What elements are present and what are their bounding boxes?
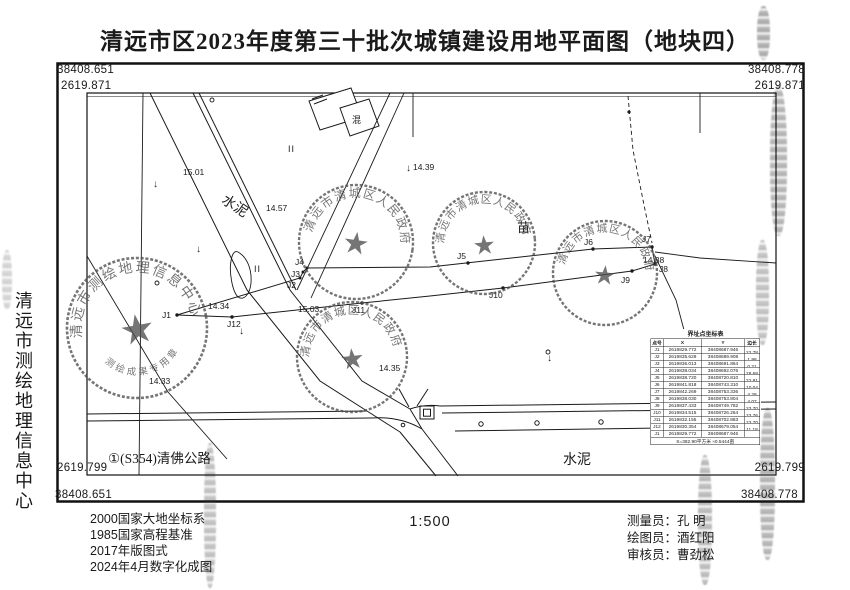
elevation-label: 14.57 [266, 203, 288, 213]
len: 10.04 [744, 381, 760, 388]
len: 0.21 [744, 360, 760, 367]
point-label: J8 [659, 264, 668, 274]
header-length: 边长 [744, 339, 760, 347]
elevation-label: 14.33 [149, 376, 171, 386]
len: 22.78 [744, 346, 760, 353]
boundary-point [466, 261, 469, 264]
road-edge [193, 93, 410, 409]
y: 38408749.782 [702, 402, 745, 409]
pt: J5 [651, 374, 664, 381]
x: 2619829.772 [663, 346, 702, 353]
table-summary-row: S=382.90平方米 ≈0.5444亩 [651, 437, 760, 445]
x: 2619830.354 [663, 423, 702, 430]
note-datum: 2000国家大地坐标系 [90, 511, 212, 527]
boundary-point-markers [175, 245, 656, 318]
boundary-point [591, 247, 594, 250]
x: 2619841.818 [663, 381, 702, 388]
scan-stain [757, 6, 770, 60]
elevation-label: 14.34 [208, 301, 230, 311]
len: 4.07 [744, 395, 760, 402]
paddy-mark: II [288, 144, 295, 154]
pt: J7 [651, 388, 664, 395]
road-edge [199, 93, 296, 290]
y: 38408753.336 [702, 388, 745, 395]
road-edge [87, 411, 367, 414]
corner-coord-top-right-x: 2619.871 [735, 80, 805, 92]
pt: J1 [651, 430, 664, 437]
junction-stub [399, 389, 428, 407]
boundary-point [175, 313, 178, 316]
note-digitized: 2024年4月数字化成图 [90, 559, 212, 575]
reviewer-role: 审核员： [627, 548, 677, 562]
x: 2619838.720 [663, 374, 702, 381]
pt: J9 [651, 402, 664, 409]
len: 1.98 [744, 353, 760, 360]
y: 38408692.076 [702, 367, 745, 374]
point-label: J1 [162, 310, 171, 320]
point-label: J3 [291, 269, 300, 279]
table-row: J102619834.51538408726.26423.76 [651, 409, 760, 416]
note-height: 1985国家高程基准 [90, 527, 212, 543]
scan-stain [2, 250, 12, 310]
table-row: J82619838.03038408753.8044.07 [651, 395, 760, 402]
spot-point [155, 281, 159, 285]
corner-coord-top-left-y: 38408.651 [57, 64, 114, 76]
y: 38408726.264 [702, 409, 745, 416]
header-y: Y [702, 339, 745, 347]
pt: J12 [651, 423, 664, 430]
star-icon: ★ [592, 259, 618, 291]
scan-stain [698, 455, 712, 585]
scan-stain [204, 443, 216, 588]
boundary-coordinate-table: 界址点坐标表 点号 X Y 边长 J12619829.77238408687.9… [650, 329, 760, 449]
len: 23.76 [744, 409, 760, 416]
elevation-label: 15.01 [183, 167, 205, 177]
corner-coord-bottom-left-x: 2619.799 [57, 462, 107, 474]
y: 38408679.054 [702, 423, 745, 430]
coordinate-table-title: 界址点坐标表 [651, 330, 761, 339]
road-edge [422, 429, 458, 476]
point-label: J5 [457, 251, 466, 261]
surveyor-role: 测量员： [627, 514, 677, 528]
x: 2619836.013 [663, 360, 702, 367]
corner-coord-bottom-left-y: 38408.651 [55, 489, 112, 501]
drafter-role: 绘图员： [627, 531, 677, 545]
x: 2619832.155 [663, 416, 702, 423]
seal-government-b: 清远市清城区人民政府 ★ [429, 188, 540, 299]
coordinate-table: 点号 X Y 边长 J12619829.77238408687.94622.78… [651, 339, 761, 446]
point-label: J9 [621, 275, 630, 285]
pt: J2 [651, 353, 664, 360]
star-icon: ★ [338, 342, 366, 375]
road-edge [150, 93, 367, 411]
cement-road-label: 水泥 [219, 192, 251, 221]
y: 38408687.946 [702, 346, 745, 353]
x: 2619834.515 [663, 409, 702, 416]
y: 38408689.908 [702, 353, 745, 360]
parcel-lower-edge [177, 247, 655, 317]
table-row: J72619842.26938408753.3364.28 [651, 388, 760, 395]
star-icon: ★ [340, 226, 371, 262]
down-arrow-icon: ↓ [196, 244, 201, 255]
road-point [401, 423, 405, 427]
seal-government-a: 清远市清城区人民政府 ★ [292, 178, 421, 307]
building-material-label: 混 [352, 115, 361, 125]
table-row: J112619832.15538408702.88323.70 [651, 416, 760, 423]
table-row: J92619837.43338408749.78223.70 [651, 402, 760, 409]
elevation-label: 14.39 [413, 162, 435, 172]
len: 22.91 [744, 374, 760, 381]
spot-point [210, 98, 214, 102]
down-arrow-icon: ↓ [547, 353, 552, 364]
pt: J6 [651, 381, 664, 388]
grid-line-vertical [139, 93, 143, 475]
scale-label: 1:500 [385, 514, 475, 530]
len: 23.70 [744, 402, 760, 409]
cement-road-label: 水泥 [563, 452, 591, 468]
y: 38408753.804 [702, 395, 745, 402]
table-row: J22619835.62938408689.9081.98 [651, 353, 760, 360]
dashed-boundary [628, 96, 652, 243]
table-row: J122619830.35438408679.05411.18 [651, 423, 760, 430]
building: 混 [309, 88, 379, 136]
table-row: J42619838.03438408692.07628.68 [651, 367, 760, 374]
culvert-symbol [420, 406, 434, 419]
elevation-label: 14.35 [379, 363, 401, 373]
down-arrow-icon: ↓ [239, 326, 244, 337]
paddy-mark: II [254, 264, 261, 274]
len: 4.28 [744, 388, 760, 395]
pt: J11 [651, 416, 664, 423]
road-edge [400, 432, 436, 476]
star-icon: ★ [471, 229, 497, 261]
road-point [535, 421, 539, 425]
x: 2619837.433 [663, 402, 702, 409]
down-arrow-icon: ↓ [153, 179, 158, 190]
table-row: J12619829.77238408687.946 [651, 430, 760, 437]
road-point [479, 422, 483, 426]
len [744, 430, 760, 437]
s354-road-label: ①(S354)清佛公路 [108, 451, 211, 466]
pt: J4 [651, 367, 664, 374]
x: 2619829.772 [663, 430, 702, 437]
scan-stain [770, 86, 787, 236]
map-sheet: 清远市区2023年度第三十批次城镇建设用地平面图（地块四） [0, 0, 850, 590]
elevation-label: 15.03 [298, 304, 320, 314]
boundary-point [630, 269, 633, 272]
y: 38408720.810 [702, 374, 745, 381]
y: 38408691.864 [702, 360, 745, 367]
area-summary: S=382.90平方米 ≈0.5444亩 [651, 437, 760, 445]
parcel-upper-edge [177, 247, 652, 315]
x: 2619842.269 [663, 388, 702, 395]
corner-coord-top-left-x: 2619.871 [61, 80, 111, 92]
len: 11.18 [744, 423, 760, 430]
len: 23.70 [744, 416, 760, 423]
boundary-dot [627, 110, 630, 113]
point-label: J2 [287, 280, 296, 290]
road-edge [87, 418, 371, 421]
x: 2619838.034 [663, 367, 702, 374]
scan-stain [760, 408, 775, 560]
pt: J3 [651, 360, 664, 367]
x: 2619838.030 [663, 395, 702, 402]
note-symbology: 2017年版图式 [90, 543, 212, 559]
header-point: 点号 [651, 339, 664, 347]
x: 2619835.629 [663, 353, 702, 360]
down-arrow-icon: ↓ [406, 163, 411, 174]
table-row: J12619829.77238408687.94622.78 [651, 346, 760, 353]
y: 38408743.310 [702, 381, 745, 388]
scan-stain [756, 240, 769, 345]
road-edge [367, 409, 422, 432]
culvert-symbol-inner [424, 409, 431, 416]
side-institution-text: 清远市测绘地理信息中心 [10, 291, 36, 511]
seal-survey-center: 清远市测绘地理信息中心 测绘成果专用章 ★ [56, 247, 218, 409]
boundary-point [302, 271, 305, 274]
map-title: 清远市区2023年度第三十批次城镇建设用地平面图（地块四） [0, 22, 850, 56]
footer-notes: 2000国家大地坐标系 1985国家高程基准 2017年版图式 2024年4月数… [90, 511, 212, 575]
table-row: J62619841.81838408743.31010.04 [651, 381, 760, 388]
table-header-row: 点号 X Y 边长 [651, 339, 760, 347]
star-icon: ★ [116, 305, 159, 355]
pt: J1 [651, 346, 664, 353]
road-point [599, 420, 603, 424]
corner-coord-top-right-y: 38408.778 [735, 64, 805, 76]
len: 28.68 [744, 367, 760, 374]
table-row: J52619838.72038408720.81022.91 [651, 374, 760, 381]
pt: J8 [651, 395, 664, 402]
header-x: X [663, 339, 702, 347]
table-row: J32619836.01338408691.8640.21 [651, 360, 760, 367]
y: 38408702.883 [702, 416, 745, 423]
pt: J10 [651, 409, 664, 416]
y: 38408687.946 [702, 430, 745, 437]
